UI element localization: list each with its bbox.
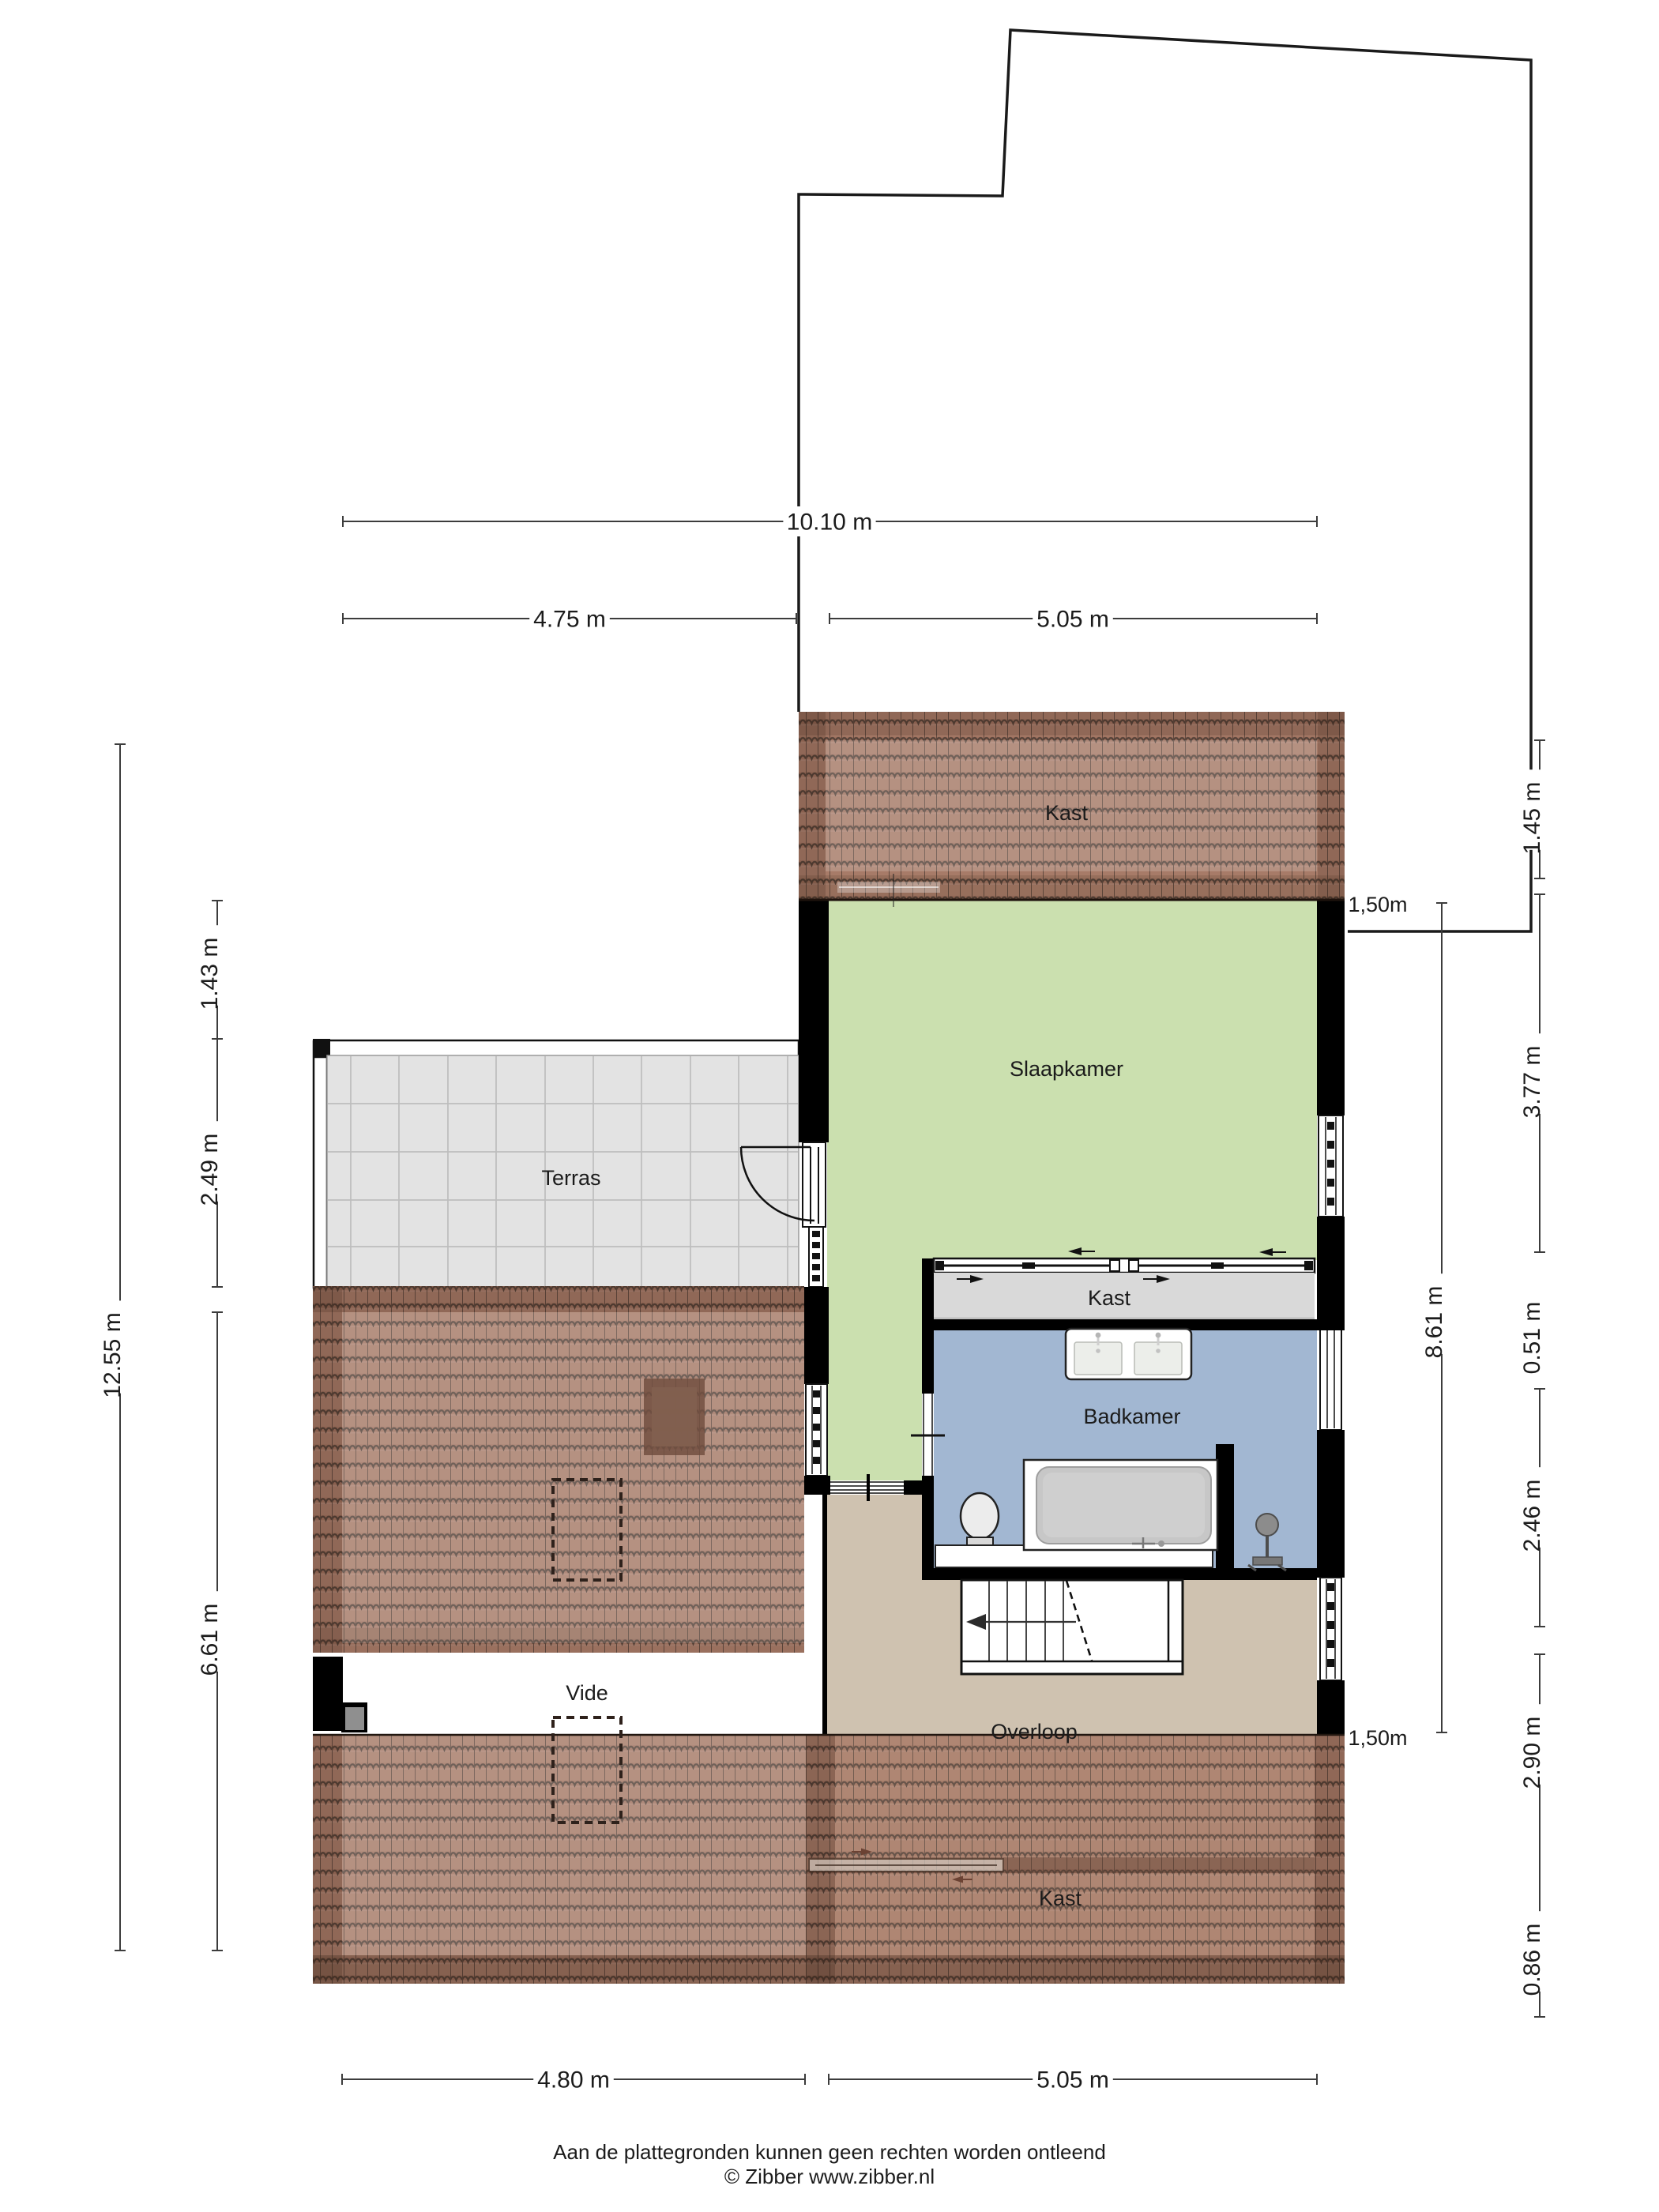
svg-text:12.55 m: 12.55 m — [100, 1312, 126, 1398]
svg-text:Kast: Kast — [1045, 801, 1089, 825]
svg-text:1.43 m: 1.43 m — [197, 938, 223, 1010]
svg-text:4.80 m: 4.80 m — [537, 2067, 610, 2093]
svg-text:Kast: Kast — [1088, 1286, 1131, 1310]
svg-text:Terras: Terras — [541, 1166, 600, 1190]
svg-text:10.10 m: 10.10 m — [787, 510, 872, 536]
svg-text:Overloop: Overloop — [991, 1720, 1078, 1744]
svg-text:8.61 m: 8.61 m — [1421, 1286, 1447, 1359]
svg-text:Slaapkamer: Slaapkamer — [1010, 1057, 1123, 1081]
svg-text:5.05 m: 5.05 m — [1036, 607, 1109, 633]
svg-text:2.49 m: 2.49 m — [197, 1134, 223, 1206]
svg-text:4.75 m: 4.75 m — [533, 607, 606, 633]
svg-text:© Zibber www.zibber.nl: © Zibber www.zibber.nl — [724, 2165, 935, 2188]
svg-text:6.61 m: 6.61 m — [197, 1604, 223, 1676]
svg-text:3.77 m: 3.77 m — [1519, 1046, 1545, 1119]
svg-text:Kast: Kast — [1039, 1887, 1082, 1910]
svg-text:1,50m: 1,50m — [1348, 1726, 1407, 1750]
svg-text:2.46 m: 2.46 m — [1519, 1480, 1545, 1552]
svg-text:0.86 m: 0.86 m — [1519, 1924, 1545, 1996]
svg-text:0.51 m: 0.51 m — [1519, 1302, 1545, 1375]
svg-text:Aan de plattegronden kunnen ge: Aan de plattegronden kunnen geen rechten… — [553, 2140, 1106, 2164]
svg-text:5.05 m: 5.05 m — [1036, 2067, 1109, 2093]
svg-text:Vide: Vide — [566, 1681, 608, 1705]
svg-text:2.90 m: 2.90 m — [1519, 1717, 1545, 1789]
svg-text:1,50m: 1,50m — [1348, 893, 1407, 916]
svg-text:1.45 m: 1.45 m — [1519, 782, 1545, 855]
svg-text:Badkamer: Badkamer — [1083, 1405, 1180, 1428]
